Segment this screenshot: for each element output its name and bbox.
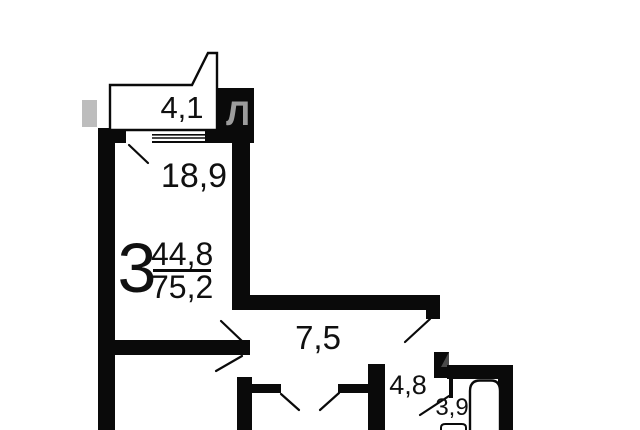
balcony-door-opening — [126, 131, 152, 143]
floor-plan: 4,1 18,9 3 44,8 75,2 7,5 4,8 3,9 Л — [0, 0, 640, 430]
wall-corridor-top — [232, 295, 440, 310]
livingroom-area-label: 18,9 — [155, 159, 233, 193]
corridor-area-label: 7,5 — [286, 321, 350, 354]
window — [152, 131, 205, 141]
wall-livingroom-bottom — [98, 340, 250, 355]
wall-livingroom-right — [232, 143, 250, 297]
wall-bottom-bar-left — [252, 384, 281, 393]
door-swing-room-middle-left — [281, 394, 299, 410]
hallway-area-label: 4,8 — [383, 372, 433, 399]
wall-corridor-end-block — [426, 310, 440, 319]
bathtub — [470, 381, 500, 430]
watermark-letter: Л — [222, 97, 254, 131]
door-swing-balcony — [129, 145, 148, 163]
sink — [441, 424, 466, 430]
balcony-area-label: 4,1 — [150, 92, 214, 123]
wall-bottom-middle-stub — [237, 377, 252, 430]
bathroom-area-label: 3,9 — [433, 396, 471, 420]
door-swing-room-left — [216, 356, 242, 371]
total-area-label: 75,2 — [151, 271, 213, 303]
door-swing-room-middle-right — [320, 393, 339, 410]
door-swing-corridor — [405, 319, 430, 342]
living-area-label: 44,8 — [151, 238, 213, 270]
floor-plan-drawing — [0, 0, 640, 430]
watermark-fragment-left — [82, 100, 97, 127]
door-swing-livingroom — [221, 321, 242, 341]
wall-bottom-bar-right — [338, 384, 368, 393]
